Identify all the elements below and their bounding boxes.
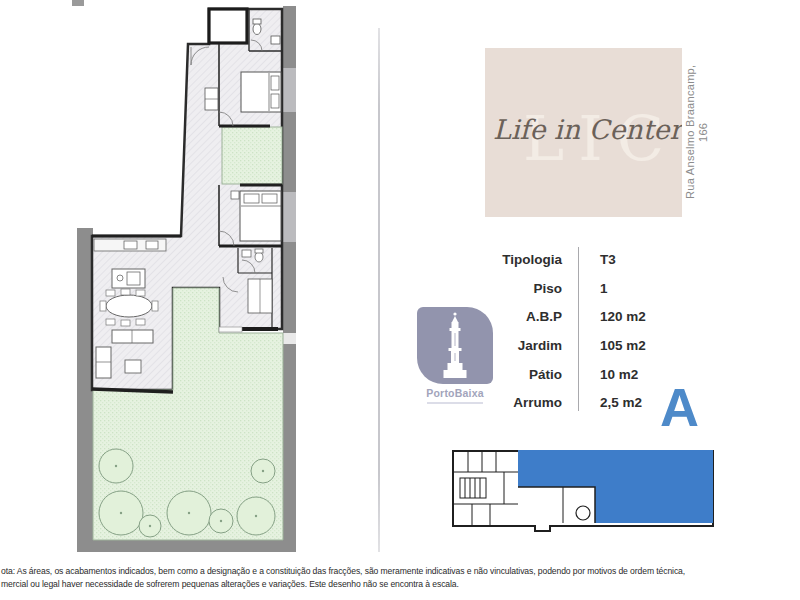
disclaimer-line2: mercial ou legal haver necessidade de so… [1, 578, 771, 591]
portobaixa-label: PortoBaixa [411, 387, 499, 399]
spec-value: 1 [600, 281, 608, 296]
clerigos-tower-icon [417, 307, 493, 384]
brochure-page: LIC Life in Center Rua Anselmo Braancamp… [0, 0, 800, 600]
address-line1: Rua Anselmo Braancamp, [684, 65, 696, 199]
footprint-circle-feature [576, 506, 590, 520]
window-hint [283, 192, 296, 242]
toilet-icon [253, 24, 261, 35]
unit-letter: A [660, 380, 699, 434]
portobaixa-tagline [427, 402, 483, 404]
kitchen-sink [124, 241, 137, 249]
garden-door [219, 327, 242, 332]
patio-area [222, 127, 282, 184]
spec-value: 105 m2 [600, 338, 646, 353]
armchair-icon [96, 347, 111, 378]
brand-title: Life in Center [493, 114, 674, 145]
cropped-mark [72, 0, 84, 6]
spec-value: 120 m2 [600, 309, 646, 324]
sink-icon [242, 250, 251, 257]
utility-room [209, 9, 247, 43]
specs-divider-line [578, 247, 579, 411]
nightstand-icon [231, 191, 239, 199]
apartment-floorplan [0, 0, 340, 565]
toilet-icon [255, 252, 263, 262]
dining-table [106, 295, 152, 317]
spec-row-piso: Piso 1 [398, 274, 700, 303]
coffee-table [125, 360, 141, 373]
spec-label: Piso [398, 281, 562, 296]
sink-icon [271, 36, 280, 44]
spec-row-tipologia: Tipologia T3 [398, 245, 700, 274]
door-gap [283, 333, 296, 344]
toilet-tank [253, 19, 261, 24]
brand-box: LIC Life in Center [485, 48, 682, 217]
disclaimer-note: ota: As áreas, os acabamentos indicados,… [1, 565, 771, 591]
panel-divider [378, 28, 380, 552]
brand-address: Rua Anselmo Braancamp,166 [684, 52, 710, 212]
spec-label: Tipologia [398, 252, 562, 267]
portobaixa-logo [417, 307, 493, 384]
sofa-icon [112, 330, 153, 343]
spec-value: 10 m2 [600, 367, 638, 382]
spec-value: 2,5 m2 [600, 395, 642, 410]
disclaimer-line1: ota: As áreas, os acabamentos indicados,… [1, 565, 771, 578]
building-footprint [448, 444, 723, 539]
site-wall-left [77, 228, 93, 540]
site-wall-bottom [77, 540, 296, 552]
spec-value: T3 [600, 252, 616, 267]
window-hint [283, 68, 296, 112]
address-line2: 166 [697, 122, 709, 141]
